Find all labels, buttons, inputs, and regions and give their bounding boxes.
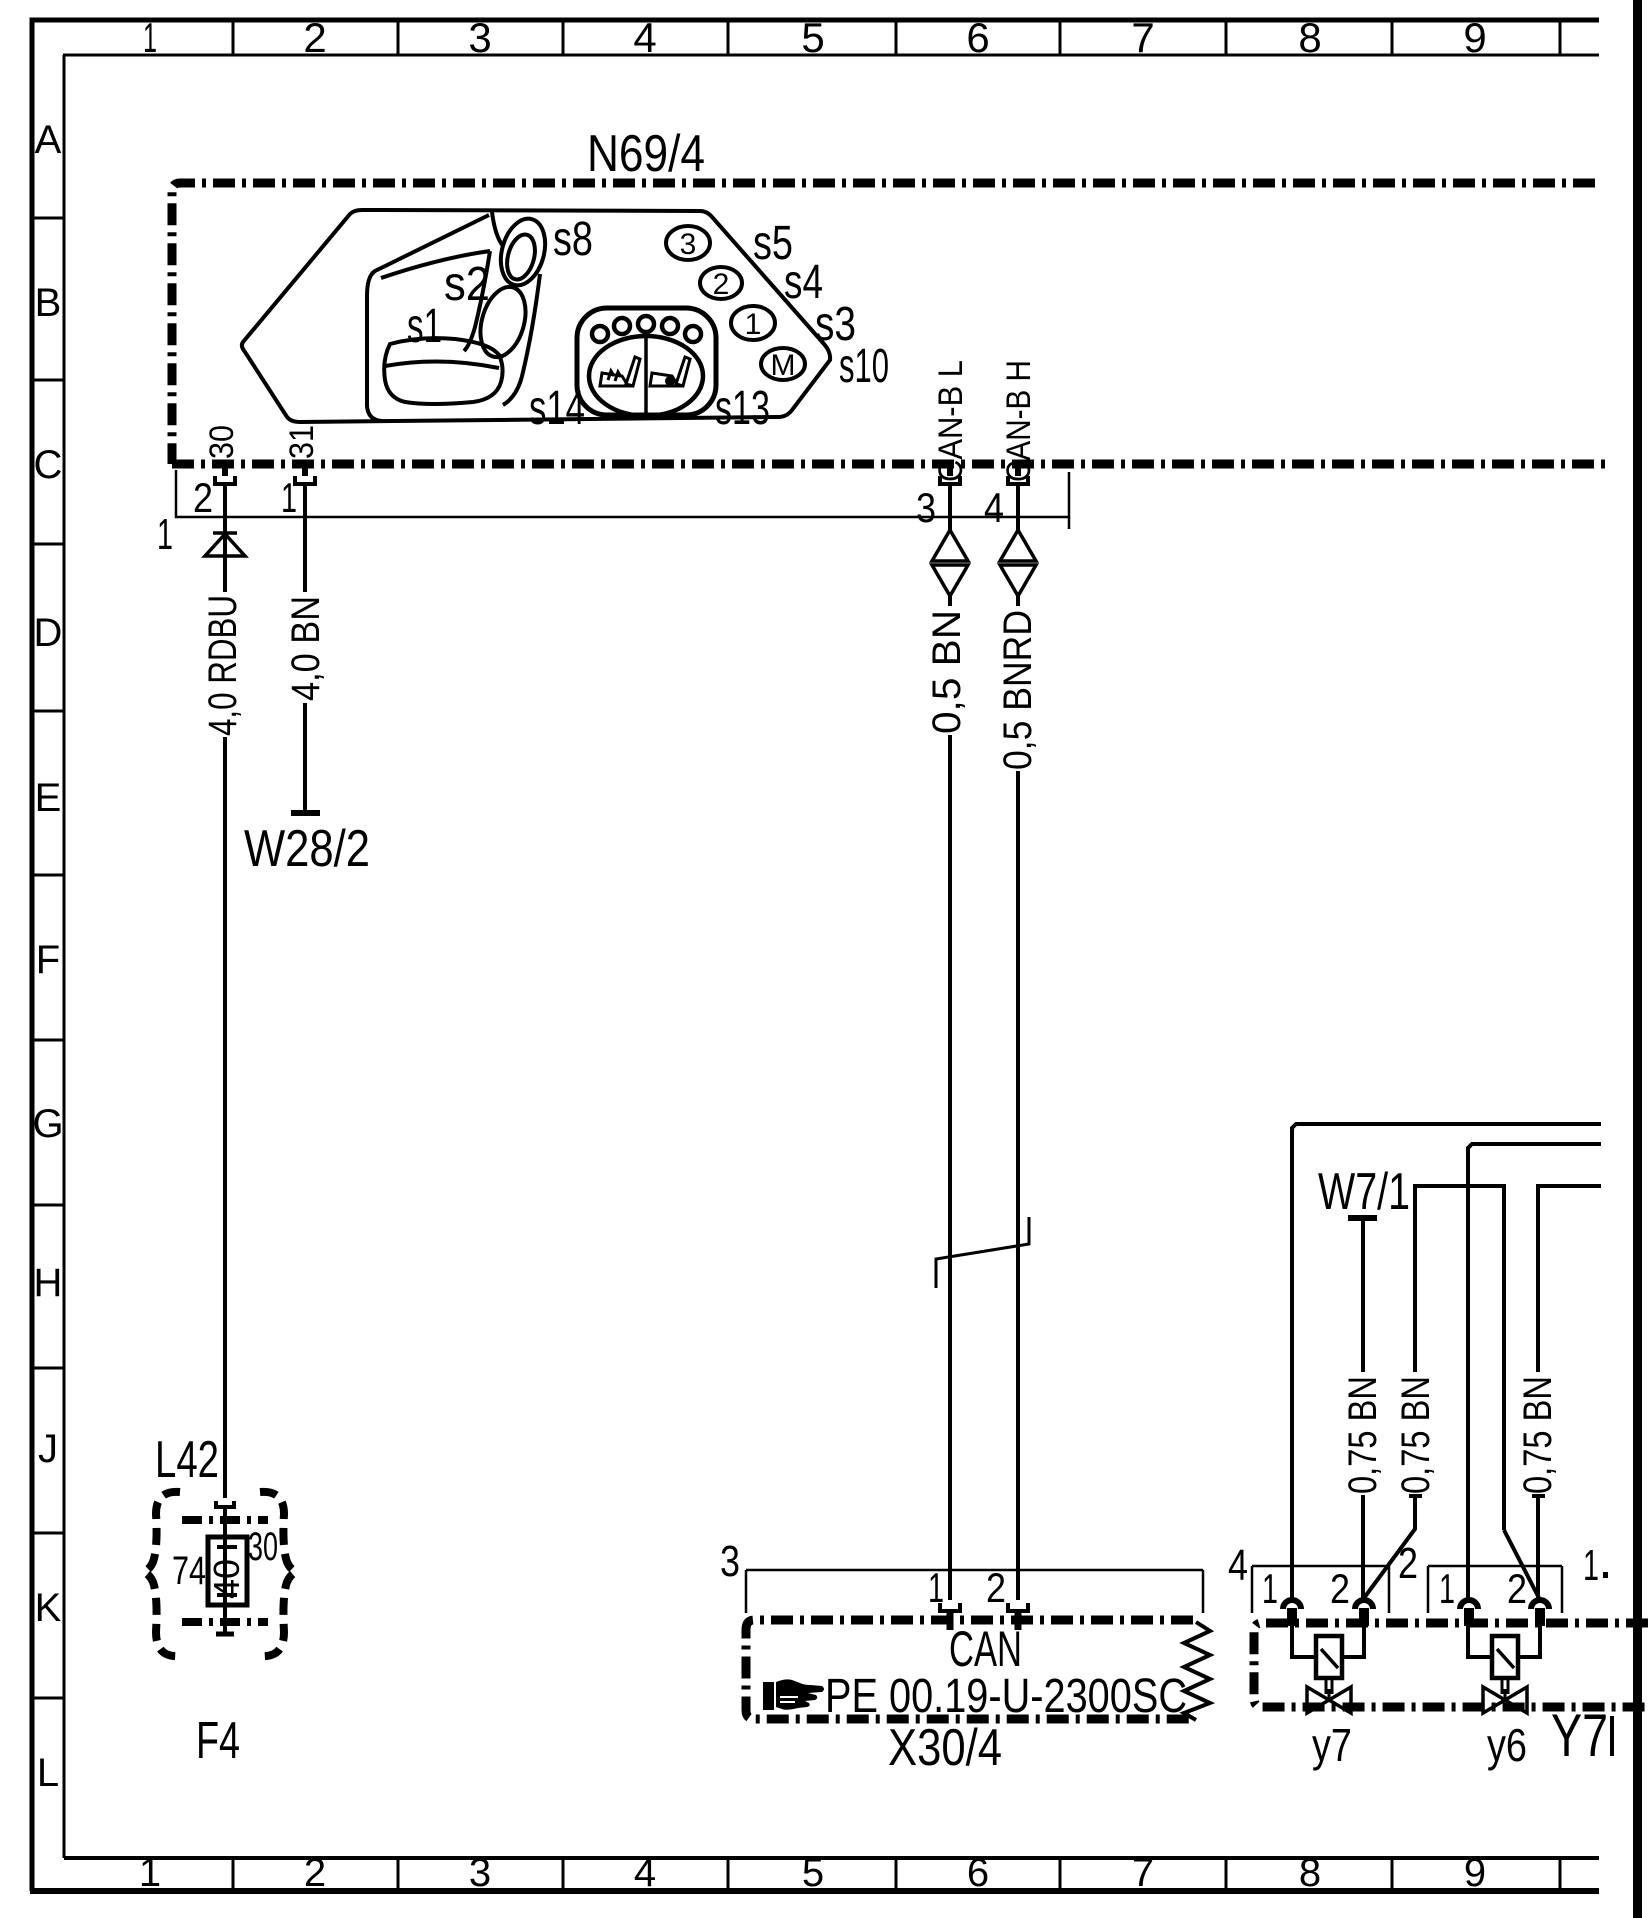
svg-text:6: 6 [967,1851,989,1895]
svg-text:L42: L42 [155,1431,219,1489]
svg-text:2: 2 [986,1564,1006,1611]
svg-text:8: 8 [1298,14,1321,61]
svg-text:H: H [34,1261,63,1305]
svg-text:2: 2 [1330,1565,1350,1612]
svg-text:4: 4 [634,1851,656,1895]
svg-text:G: G [32,1102,63,1146]
svg-text:74: 74 [172,1549,206,1593]
svg-text:4: 4 [984,484,1004,531]
svg-text:PE 00.19-U-2300SC: PE 00.19-U-2300SC [825,1670,1187,1723]
svg-text:4: 4 [1228,1541,1248,1590]
svg-text:s13: s13 [715,382,770,435]
svg-text:N69/4: N69/4 [587,125,705,183]
svg-text:4,0 BN: 4,0 BN [284,596,328,701]
svg-text:2: 2 [304,1851,326,1895]
svg-text:L: L [37,1751,59,1795]
svg-text:J: J [38,1427,58,1471]
svg-text:y6: y6 [1487,1719,1527,1771]
svg-text:M: M [771,349,796,382]
svg-text:2: 2 [193,474,213,521]
svg-text:1: 1 [1262,1565,1278,1612]
svg-text:31: 31 [283,425,321,459]
svg-text:1: 1 [139,1851,161,1895]
svg-text:5: 5 [801,14,824,61]
svg-text:2: 2 [303,14,326,61]
svg-text:A: A [35,118,62,162]
svg-text:F: F [36,938,60,982]
svg-text:8: 8 [1299,1851,1321,1895]
svg-text:6: 6 [966,14,989,61]
svg-text:CAN: CAN [949,1621,1022,1677]
svg-text:1: 1 [281,474,297,521]
svg-text:W7/1: W7/1 [1318,1163,1410,1221]
svg-text:1: 1 [1583,1541,1599,1590]
svg-text:7: 7 [1131,14,1154,61]
svg-text:y7: y7 [1312,1719,1352,1771]
svg-text:40: 40 [206,1559,247,1599]
svg-text:C: C [34,443,63,487]
svg-text:W28/2: W28/2 [244,820,370,878]
svg-text:3: 3 [468,14,491,61]
svg-text:0,5 BNRD: 0,5 BNRD [996,610,1040,770]
svg-text:Y7: Y7 [1551,1702,1608,1769]
svg-text:2: 2 [1398,1539,1418,1588]
svg-text:B: B [35,281,62,325]
svg-text:CAN-B H: CAN-B H [1000,360,1038,482]
svg-text:D: D [34,611,63,655]
svg-text:0,75 BN: 0,75 BN [1516,1376,1560,1494]
svg-text:3: 3 [469,1851,491,1895]
svg-text:9: 9 [1464,1851,1486,1895]
svg-text:4,0 RDBU: 4,0 RDBU [201,595,245,736]
svg-text:0,5 BN: 0,5 BN [925,610,969,734]
svg-text:0,75 BN: 0,75 BN [1394,1376,1438,1494]
svg-text:s14: s14 [529,382,585,435]
svg-text:E: E [35,776,62,820]
svg-text:7: 7 [1132,1851,1154,1895]
svg-text:s10: s10 [839,340,889,393]
svg-text:1: 1 [928,1564,944,1611]
svg-text:CAN-B L: CAN-B L [932,360,970,482]
svg-text:30: 30 [203,425,241,459]
svg-text:30: 30 [248,1525,278,1569]
svg-text:3: 3 [720,1537,740,1586]
svg-text:3: 3 [916,484,936,531]
svg-text:1: 1 [157,510,173,559]
svg-text:s8: s8 [553,213,593,266]
svg-text:0,75 BN: 0,75 BN [1341,1376,1385,1494]
svg-text:1: 1 [1439,1565,1455,1612]
svg-text:4: 4 [633,14,656,61]
svg-text:3: 3 [680,228,697,261]
svg-text:K: K [35,1586,62,1630]
svg-text:9: 9 [1463,14,1486,61]
svg-text:5: 5 [802,1851,824,1895]
svg-text:2: 2 [1507,1565,1527,1612]
svg-text:2: 2 [713,268,730,301]
svg-text:s1: s1 [407,300,442,353]
svg-text:s2: s2 [444,258,490,311]
svg-text:1: 1 [745,308,762,341]
svg-text:X30/4: X30/4 [888,1719,1002,1777]
svg-text:F4: F4 [196,1712,240,1770]
svg-text:1: 1 [143,14,157,61]
